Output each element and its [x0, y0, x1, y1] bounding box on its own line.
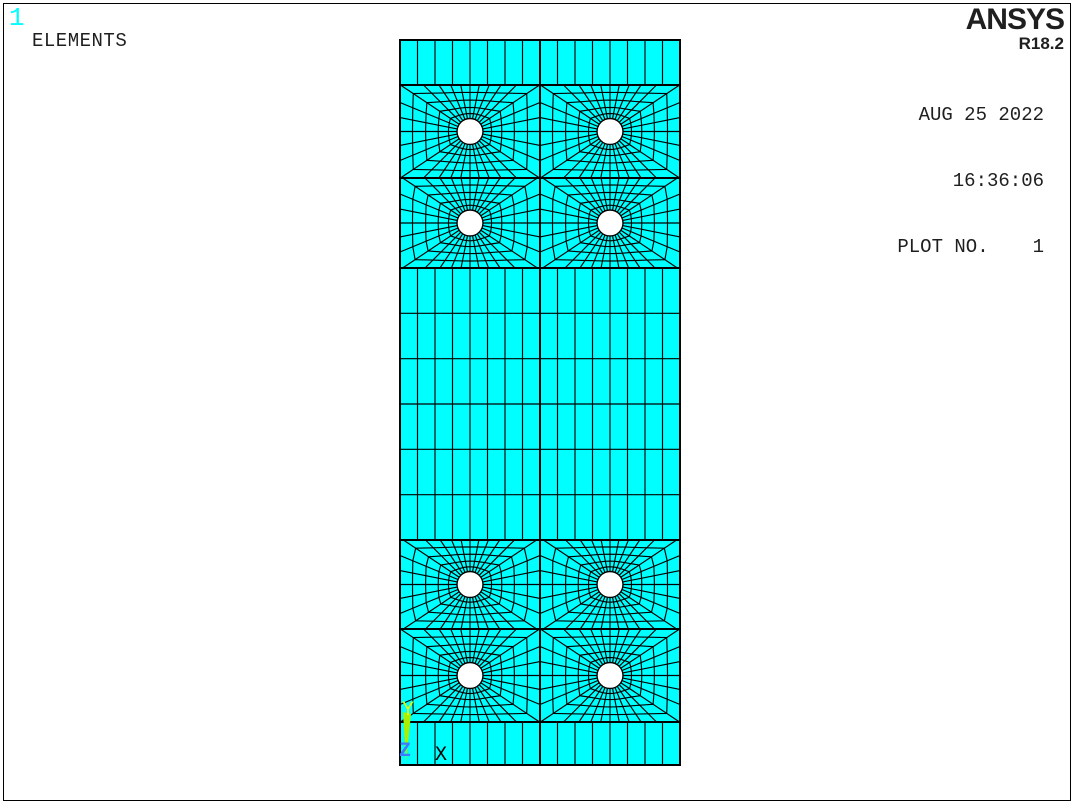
plot-window-number: 1 — [9, 5, 25, 31]
plot-info-block: AUG 25 2022 16:36:06 PLOT NO.1 — [897, 60, 1044, 280]
ansys-release-version: R18.2 — [966, 35, 1064, 53]
triad-y-axis-label: Y — [402, 701, 414, 721]
plot-date: AUG 25 2022 — [897, 104, 1044, 126]
plot-number-line: PLOT NO.1 — [897, 236, 1044, 258]
triad-x-axis-label: X — [435, 746, 447, 766]
triad-z-axis-label: Z — [399, 742, 411, 762]
plot-type-label: ELEMENTS — [32, 30, 127, 52]
ansys-logo: ANSYS — [966, 7, 1064, 33]
plot-number-value: 1 — [989, 236, 1044, 258]
brand-block: ANSYS R18.2 — [966, 7, 1064, 53]
plot-time: 16:36:06 — [897, 170, 1044, 192]
plot-number-label: PLOT NO. — [897, 236, 988, 258]
